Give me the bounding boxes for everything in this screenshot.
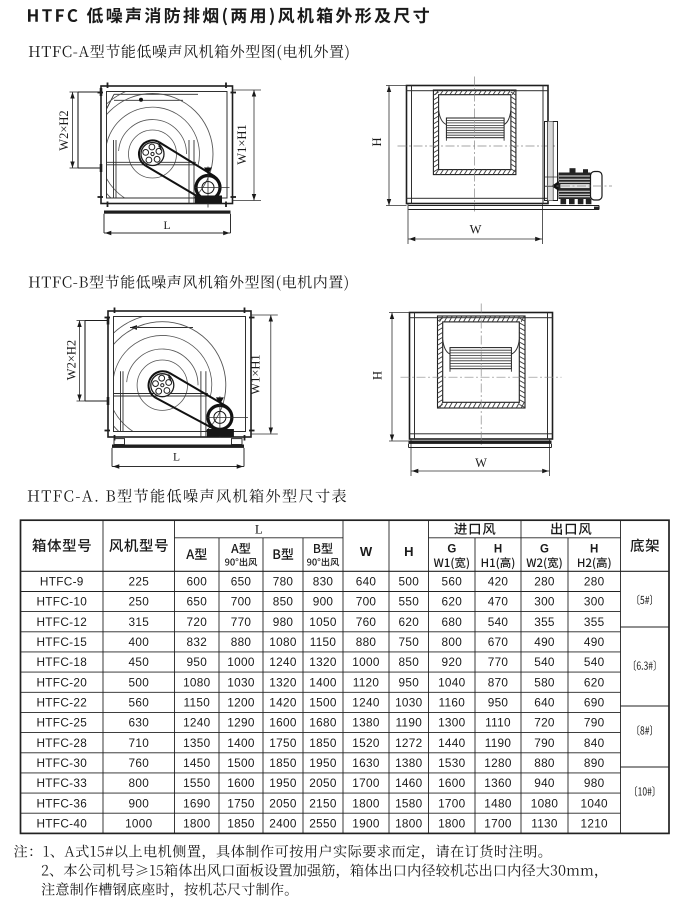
svg-text:920: 920	[442, 655, 463, 669]
svg-text:HTFC-15: HTFC-15	[36, 635, 87, 649]
svg-text:1480: 1480	[484, 796, 512, 810]
svg-text:1160: 1160	[439, 696, 466, 710]
svg-text:830: 830	[313, 575, 334, 589]
svg-text:W: W	[360, 544, 373, 559]
svg-text:870: 870	[488, 675, 509, 689]
svg-text:1520: 1520	[352, 736, 380, 750]
svg-text:670: 670	[488, 635, 509, 649]
svg-text:650: 650	[187, 595, 208, 609]
svg-text:1600: 1600	[269, 716, 297, 730]
svg-text:470: 470	[488, 595, 509, 609]
svg-text:490: 490	[584, 635, 605, 649]
svg-text:500: 500	[129, 675, 150, 689]
svg-text:1240: 1240	[269, 655, 297, 669]
svg-text:900: 900	[313, 595, 334, 609]
svg-text:1500: 1500	[227, 756, 255, 770]
svg-text:880: 880	[356, 635, 377, 649]
svg-text:1240: 1240	[183, 716, 211, 730]
svg-text:1280: 1280	[484, 756, 512, 770]
svg-text:H: H	[370, 137, 384, 146]
svg-text:225: 225	[129, 575, 150, 589]
svg-text:1040: 1040	[438, 675, 466, 689]
svg-text:760: 760	[356, 615, 377, 629]
svg-text:W1×H1: W1×H1	[235, 124, 249, 164]
svg-text:1040: 1040	[580, 796, 608, 810]
svg-text:300: 300	[534, 595, 555, 609]
svg-text:1950: 1950	[269, 776, 297, 790]
svg-text:HTFC-36: HTFC-36	[36, 796, 87, 810]
svg-text:H: H	[494, 544, 502, 556]
svg-text:1400: 1400	[309, 675, 337, 689]
svg-text:630: 630	[129, 716, 150, 730]
svg-text:1000: 1000	[227, 655, 255, 669]
svg-text:300: 300	[584, 595, 605, 609]
svg-text:HTFC-40: HTFC-40	[36, 817, 87, 831]
svg-text:1272: 1272	[395, 736, 422, 750]
svg-text:1850: 1850	[269, 756, 297, 770]
svg-text:1680: 1680	[309, 716, 337, 730]
svg-text:580: 580	[534, 675, 555, 689]
svg-text:950: 950	[187, 655, 208, 669]
svg-text:1080: 1080	[183, 675, 211, 689]
svg-text:850: 850	[399, 655, 420, 669]
svg-text:1190: 1190	[485, 736, 512, 750]
svg-text:1600: 1600	[227, 776, 255, 790]
svg-text:1750: 1750	[269, 736, 297, 750]
svg-text:L: L	[173, 451, 180, 463]
svg-text:760: 760	[129, 756, 150, 770]
svg-text:1240: 1240	[352, 696, 380, 710]
svg-text:W1×H1: W1×H1	[249, 354, 263, 394]
svg-text:W2×H2: W2×H2	[57, 110, 71, 150]
svg-text:1300: 1300	[438, 716, 466, 730]
svg-text:1320: 1320	[269, 675, 297, 689]
svg-text:1800: 1800	[183, 817, 211, 831]
svg-text:1360: 1360	[484, 776, 512, 790]
svg-text:620: 620	[584, 675, 605, 689]
svg-text:H: H	[371, 371, 385, 380]
svg-text:315: 315	[129, 615, 150, 629]
svg-text:710: 710	[129, 736, 150, 750]
svg-text:940: 940	[534, 776, 555, 790]
svg-text:700: 700	[231, 595, 252, 609]
svg-text:1950: 1950	[309, 756, 337, 770]
svg-text:2550: 2550	[309, 817, 337, 831]
svg-text:HTFC-28: HTFC-28	[36, 736, 87, 750]
svg-text:980: 980	[273, 615, 294, 629]
svg-text:720: 720	[534, 716, 555, 730]
svg-text:1190: 1190	[396, 716, 423, 730]
svg-text:1110: 1110	[485, 716, 511, 730]
svg-text:1050: 1050	[309, 615, 337, 629]
svg-text:G: G	[447, 544, 456, 556]
svg-text:780: 780	[273, 575, 294, 589]
svg-text:HTFC-30: HTFC-30	[36, 756, 87, 770]
svg-text:840: 840	[584, 736, 605, 750]
svg-text:1200: 1200	[227, 696, 255, 710]
svg-text:790: 790	[534, 736, 555, 750]
svg-text:980: 980	[584, 776, 605, 790]
svg-text:1500: 1500	[309, 696, 337, 710]
svg-text:790: 790	[584, 716, 605, 730]
svg-text:1900: 1900	[352, 817, 380, 831]
svg-text:770: 770	[231, 615, 252, 629]
svg-text:560: 560	[129, 696, 150, 710]
svg-text:420: 420	[488, 575, 509, 589]
svg-text:1080: 1080	[269, 635, 297, 649]
svg-text:G: G	[540, 544, 549, 556]
svg-text:280: 280	[534, 575, 555, 589]
svg-text:2050: 2050	[269, 796, 297, 810]
svg-text:2050: 2050	[309, 776, 337, 790]
svg-text:W: W	[470, 223, 482, 237]
svg-text:650: 650	[231, 575, 252, 589]
svg-text:690: 690	[584, 696, 605, 710]
svg-text:680: 680	[442, 615, 463, 629]
svg-text:1460: 1460	[395, 776, 423, 790]
svg-text:1580: 1580	[395, 796, 423, 810]
svg-text:355: 355	[584, 615, 605, 629]
svg-text:1210: 1210	[580, 817, 608, 831]
svg-text:1030: 1030	[227, 675, 255, 689]
svg-text:1350: 1350	[183, 736, 211, 750]
svg-text:L: L	[163, 220, 170, 232]
svg-text:800: 800	[129, 776, 150, 790]
svg-text:880: 880	[534, 756, 555, 770]
svg-text:500: 500	[399, 575, 420, 589]
svg-text:H: H	[404, 544, 413, 559]
svg-text:1030: 1030	[395, 696, 423, 710]
svg-text:1290: 1290	[227, 716, 255, 730]
svg-text:2150: 2150	[309, 796, 337, 810]
svg-text:1120: 1120	[353, 675, 380, 689]
svg-text:900: 900	[129, 796, 150, 810]
svg-text:1150: 1150	[184, 696, 211, 710]
svg-text:620: 620	[399, 615, 420, 629]
svg-text:1130: 1130	[531, 817, 558, 831]
svg-text:540: 540	[488, 615, 509, 629]
svg-text:1850: 1850	[309, 736, 337, 750]
svg-text:540: 540	[534, 655, 555, 669]
svg-text:890: 890	[584, 756, 605, 770]
svg-text:1320: 1320	[309, 655, 337, 669]
svg-text:1380: 1380	[352, 716, 380, 730]
svg-text:1630: 1630	[352, 756, 380, 770]
svg-text:1600: 1600	[438, 776, 466, 790]
svg-text:950: 950	[399, 675, 420, 689]
svg-text:1530: 1530	[438, 756, 466, 770]
svg-text:1000: 1000	[125, 817, 153, 831]
svg-text:832: 832	[187, 635, 208, 649]
svg-text:1800: 1800	[438, 817, 466, 831]
svg-text:1440: 1440	[438, 736, 466, 750]
svg-text:540: 540	[584, 655, 605, 669]
svg-text:280: 280	[584, 575, 605, 589]
svg-text:450: 450	[129, 655, 150, 669]
svg-text:HTFC-33: HTFC-33	[36, 776, 87, 790]
svg-text:HTFC-10: HTFC-10	[36, 595, 87, 609]
svg-text:1400: 1400	[227, 736, 255, 750]
svg-text:HTFC-18: HTFC-18	[36, 655, 87, 669]
svg-text:770: 770	[488, 655, 509, 669]
svg-text:HTFC-20: HTFC-20	[36, 675, 87, 689]
svg-text:1450: 1450	[183, 756, 211, 770]
svg-text:250: 250	[129, 595, 150, 609]
svg-text:560: 560	[442, 575, 463, 589]
svg-text:1800: 1800	[395, 817, 423, 831]
svg-text:720: 720	[187, 615, 208, 629]
svg-text:950: 950	[488, 696, 509, 710]
svg-text:HTFC-12: HTFC-12	[36, 615, 87, 629]
svg-text:1750: 1750	[227, 796, 255, 810]
svg-text:640: 640	[534, 696, 555, 710]
svg-text:800: 800	[442, 635, 463, 649]
svg-text:1550: 1550	[183, 776, 211, 790]
svg-text:1080: 1080	[531, 796, 559, 810]
svg-text:1700: 1700	[352, 776, 380, 790]
svg-text:1800: 1800	[352, 796, 380, 810]
svg-text:HTFC-22: HTFC-22	[36, 696, 87, 710]
svg-text:620: 620	[442, 595, 463, 609]
svg-text:490: 490	[534, 635, 555, 649]
svg-text:1700: 1700	[438, 796, 466, 810]
svg-text:HTFC-9: HTFC-9	[40, 575, 84, 589]
svg-text:HTFC-25: HTFC-25	[36, 716, 87, 730]
svg-text:550: 550	[399, 595, 420, 609]
svg-text:W2×H2: W2×H2	[65, 340, 79, 380]
svg-text:750: 750	[399, 635, 420, 649]
svg-text:L: L	[255, 522, 263, 537]
svg-text:880: 880	[231, 635, 252, 649]
svg-text:640: 640	[356, 575, 377, 589]
svg-text:1850: 1850	[227, 817, 255, 831]
svg-text:600: 600	[187, 575, 208, 589]
svg-text:H: H	[590, 544, 598, 556]
svg-text:700: 700	[356, 595, 377, 609]
svg-text:2400: 2400	[269, 817, 297, 831]
svg-text:1150: 1150	[310, 635, 337, 649]
svg-text:400: 400	[129, 635, 150, 649]
svg-text:1380: 1380	[395, 756, 423, 770]
svg-text:1690: 1690	[183, 796, 211, 810]
svg-text:355: 355	[534, 615, 555, 629]
svg-text:1700: 1700	[484, 817, 512, 831]
svg-text:W: W	[475, 456, 487, 470]
svg-text:1420: 1420	[269, 696, 297, 710]
svg-text:850: 850	[273, 595, 294, 609]
svg-text:1000: 1000	[352, 655, 380, 669]
